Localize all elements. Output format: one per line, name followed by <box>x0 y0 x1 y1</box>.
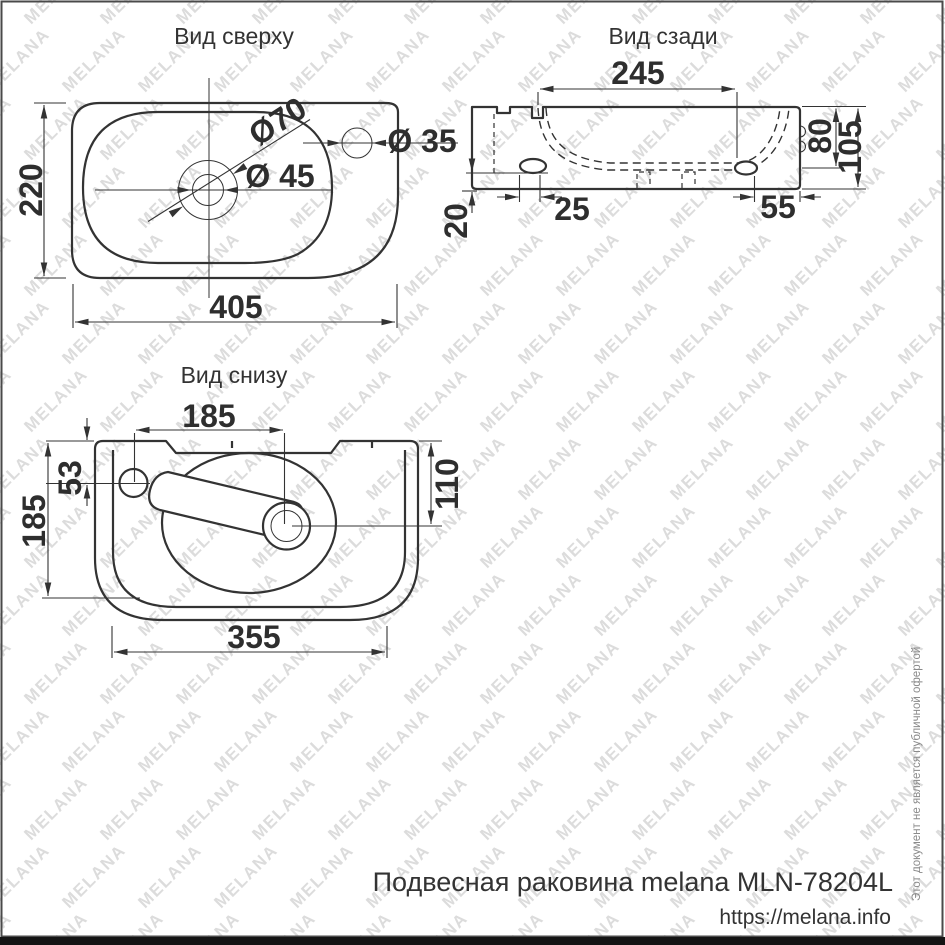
bottom-bar <box>0 937 945 945</box>
dim-label-220: 220 <box>13 163 49 216</box>
dim-label-245: 245 <box>611 55 664 91</box>
dim-label-25: 25 <box>554 191 590 227</box>
top-view-title: Вид сверху <box>174 23 294 49</box>
dim-label-185-top: 185 <box>182 398 235 434</box>
bottom-view-title: Вид снизу <box>181 362 288 388</box>
dim-label-d45: Ø 45 <box>245 158 314 194</box>
back-view-title: Вид сзади <box>608 23 717 49</box>
dim-label-53: 53 <box>52 460 88 496</box>
dim-label-105: 105 <box>832 120 868 173</box>
technical-drawing-sheet: MELANAMELANAMELANAMELANAMELANAMELANAMELA… <box>0 0 945 945</box>
mounting-hole-left <box>520 159 546 173</box>
dim-label-110: 110 <box>429 458 465 510</box>
website-link[interactable]: https://melana.info <box>719 906 891 929</box>
dim-label-d35: Ø 35 <box>387 123 456 159</box>
product-caption: Подвесная раковина melana MLN-78204L <box>373 867 893 897</box>
dim-label-185-left: 185 <box>16 494 52 547</box>
drawing-canvas: MELANAMELANAMELANAMELANAMELANAMELANAMELA… <box>0 0 945 945</box>
disclaimer-text: Этот документ не является публичной офер… <box>911 647 923 901</box>
dim-label-405: 405 <box>209 289 262 325</box>
dim-label-355: 355 <box>227 619 280 655</box>
dim-label-55: 55 <box>760 189 796 225</box>
mounting-hole-right <box>735 162 757 175</box>
dim-label-20: 20 <box>438 203 474 239</box>
